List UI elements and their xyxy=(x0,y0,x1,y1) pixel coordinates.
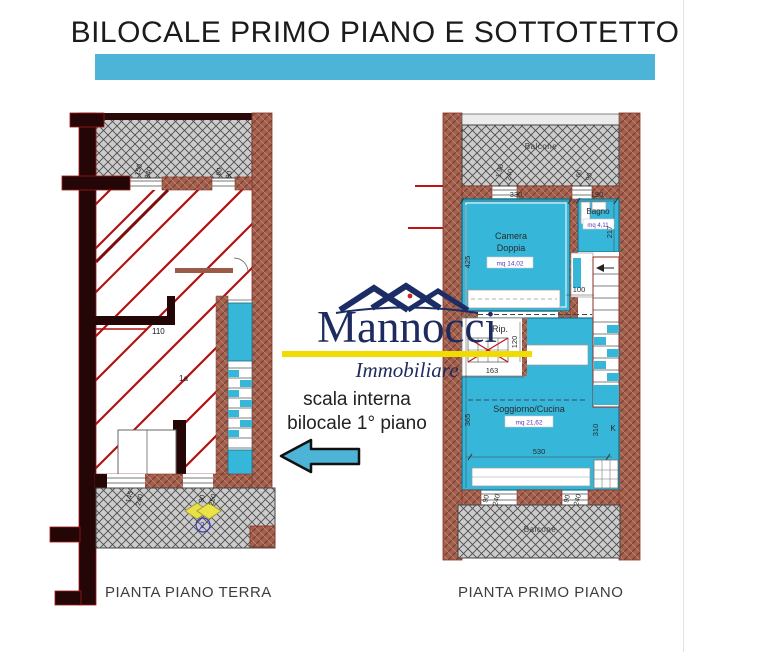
stair-note: scala interna bilocale 1° piano xyxy=(272,388,442,436)
first-balcone-top-hatch xyxy=(462,125,619,186)
dim-hall-width: 100 xyxy=(573,285,586,294)
dim-bagno-height: 217 xyxy=(605,226,614,239)
label-kitchen-tag: K xyxy=(610,424,616,433)
caption-first-floor: PIANTA PRIMO PIANO xyxy=(458,584,623,601)
first-staircase xyxy=(593,257,619,407)
dim-soggiorno-height: 365 xyxy=(463,414,472,427)
label-balcone-bottom: Balcone xyxy=(524,525,556,534)
ground-room-width-label: 110 xyxy=(152,327,165,336)
dim-first-window-bottom-1: 90 xyxy=(482,494,491,503)
label-camera-2: Doppia xyxy=(497,243,526,253)
logo-subtitle: Immobiliare xyxy=(282,358,532,383)
label-soggiorno: Soggiorno/Cucina xyxy=(493,404,565,414)
dim-top-width: 330 xyxy=(510,190,523,199)
stair-note-line1: scala interna xyxy=(272,388,442,412)
first-red-ticks xyxy=(408,186,443,228)
floorplan-page: BILOCALE PRIMO PIANO E SOTTOTETTO xyxy=(0,0,768,652)
dim-soggiorno-right-height: 310 xyxy=(591,424,600,437)
ground-right-wall xyxy=(252,113,272,490)
dim-top-right-width: 190 xyxy=(591,190,604,199)
page-edge-line xyxy=(683,0,684,652)
agency-logo: Mannocci Immobiliare xyxy=(282,280,532,383)
label-camera-1: Camera xyxy=(495,231,527,241)
stair-note-line2: bilocale 1° piano xyxy=(272,412,442,436)
logo-name: Mannocci xyxy=(282,306,532,349)
label-bagno: Bagno xyxy=(586,207,610,216)
dim-camera-height: 425 xyxy=(463,256,472,269)
label-camera-area: mq 14,02 xyxy=(496,261,523,268)
ground-bottom-hatch xyxy=(96,488,275,548)
caption-ground-floor: PIANTA PIANO TERRA xyxy=(105,584,272,601)
dim-bottom-width: 530 xyxy=(533,447,546,456)
dim-first-window-bottom-right-1: 90 xyxy=(563,494,572,503)
label-soggiorno-area: mq 21,62 xyxy=(515,420,542,427)
ground-room-tag: 1a xyxy=(179,374,188,383)
ground-stair-marker: 2 xyxy=(200,521,205,530)
ground-bottom-wall-row xyxy=(95,474,252,488)
label-balcone-top: Balcone xyxy=(525,142,557,151)
ground-balcony-hatch xyxy=(96,116,252,178)
internal-stair-arrow xyxy=(281,440,359,472)
